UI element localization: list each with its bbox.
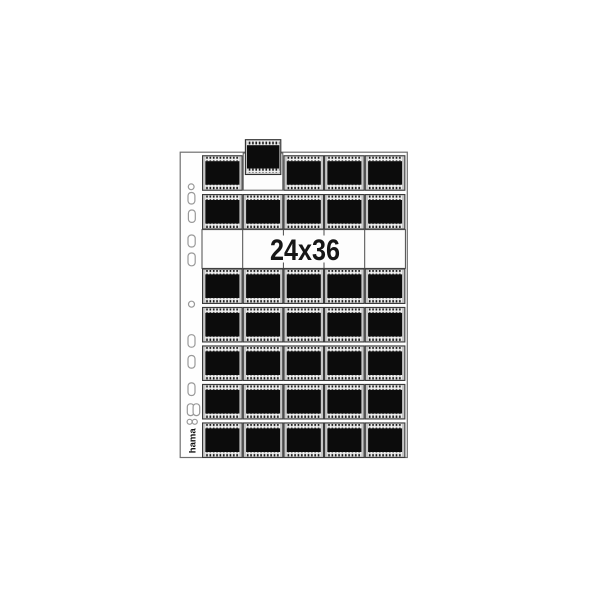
svg-text:hama: hama [187, 428, 198, 454]
svg-text:24x36: 24x36 [270, 234, 340, 267]
